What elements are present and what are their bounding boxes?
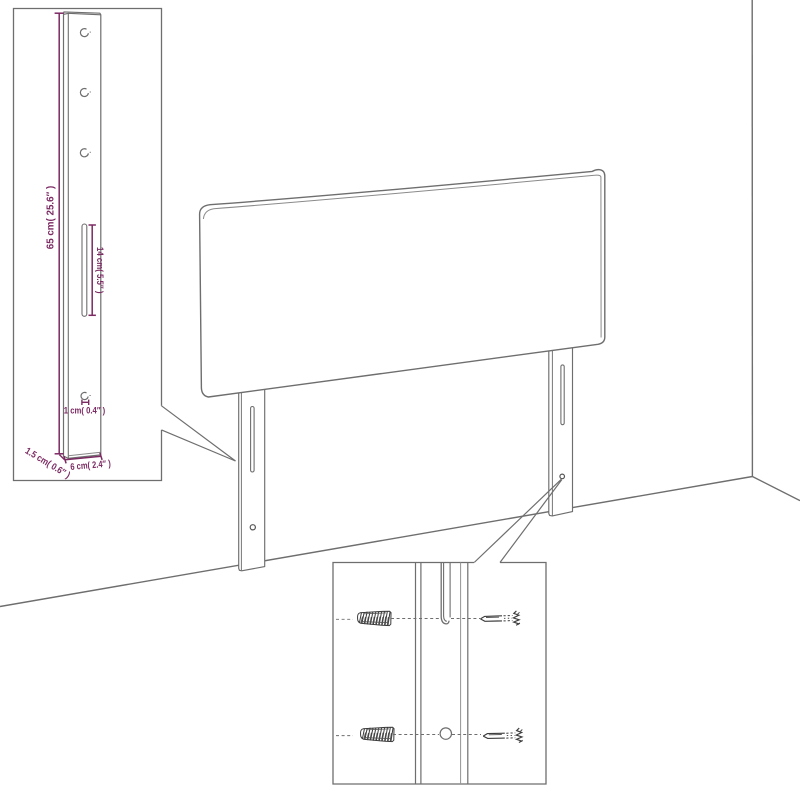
svg-text:1 cm( 0.4″ ): 1 cm( 0.4″ ) [64, 406, 106, 416]
svg-text:65 cm( 25.6″ ): 65 cm( 25.6″ ) [45, 186, 57, 250]
svg-text:14 cm( 5.5″ ): 14 cm( 5.5″ ) [95, 247, 105, 294]
